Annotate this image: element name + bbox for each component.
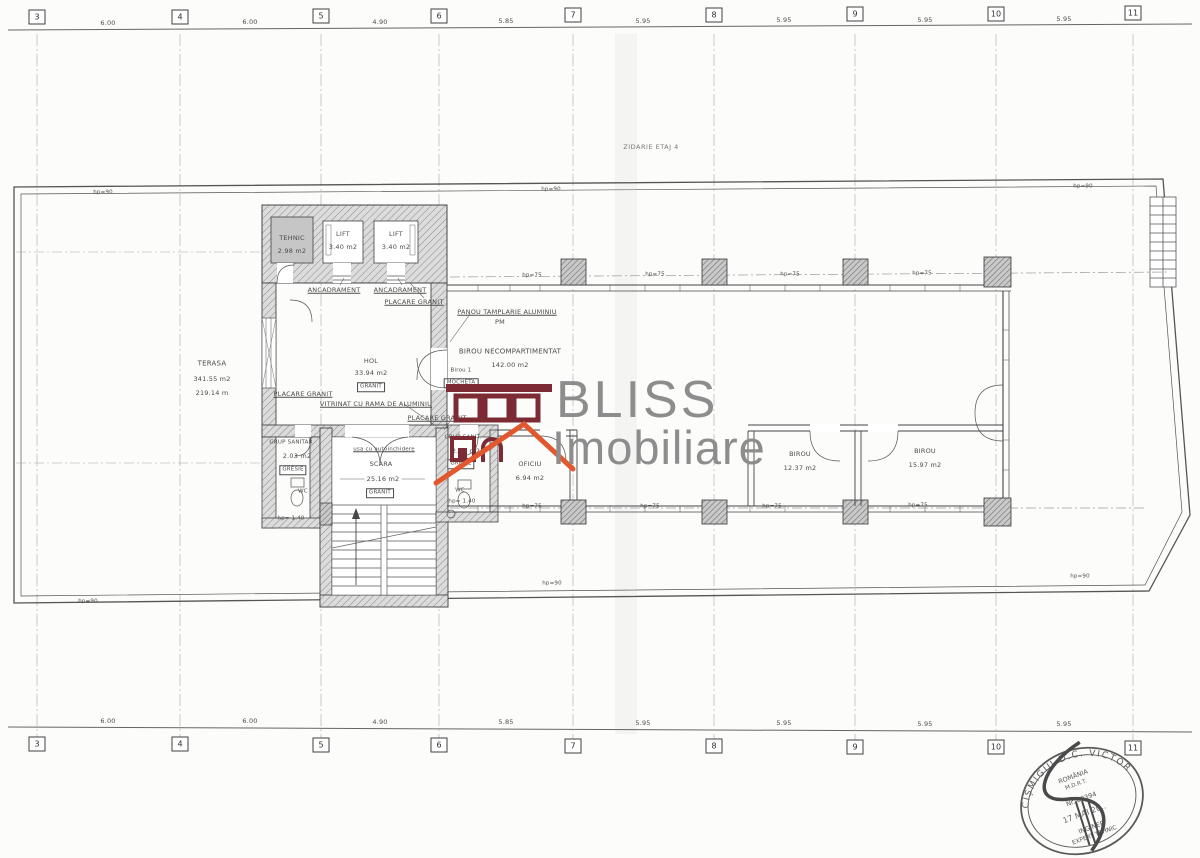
room-area-oficiu: 6.94 m2 (516, 475, 544, 482)
dim-top-2: 6.00 (242, 19, 257, 26)
grid-bubble-bot-9: 9 (847, 740, 864, 755)
grid-bubble-bot-5: 5 (313, 738, 330, 753)
hp75-label: hp=75 (522, 273, 542, 279)
hp75-label: hp=75 (522, 504, 542, 510)
door-note-scara: usa cu autoinchidere (353, 447, 415, 453)
callout-ancadrament-1: ANCADRAMENT (308, 287, 361, 294)
zidarie-note: ZIDARIE ETAJ 4 (623, 144, 678, 151)
top-ruler (8, 24, 1192, 30)
room-label-grup-sanitar-1: GRUP SANITAR (269, 440, 312, 446)
hp90-label: hp=90 (1073, 184, 1093, 190)
wc-hp-label-1: hp= 1.40 (277, 516, 304, 522)
dim-top-8: 5.95 (1056, 16, 1071, 23)
grid-bubble-top-5: 5 (313, 9, 330, 24)
room-area-hol: 33.94 m2 (355, 370, 388, 377)
dim-top-3: 4.90 (372, 19, 387, 26)
dim-bot-8: 5.95 (1056, 721, 1071, 728)
finish-tag-hol: GRANIT (357, 382, 385, 392)
grid-bubble-top-3: 3 (29, 10, 46, 25)
finish-tag-birou-1: MOCHETA (444, 378, 479, 388)
finish-tag-gs1: GRESIE (279, 465, 306, 475)
grid-bubble-bot-10: 10 (988, 740, 1005, 755)
hp75-label: hp=75 (640, 504, 660, 510)
room-area-birou-3: 15.97 m2 (909, 462, 942, 469)
dim-bot-2: 6.00 (242, 718, 257, 725)
room-label-lift-2: LIFT (389, 231, 403, 238)
room-label-lift-1: LIFT (336, 231, 350, 238)
floor-plan-page: 6.00 6.00 4.90 5.85 5.95 5.95 5.95 5.95 … (0, 0, 1200, 858)
room-area2-terasa: 219.14 m (196, 390, 229, 397)
hp90-label: hp=90 (78, 599, 98, 605)
room-area-grup-sanitar-2: 2.03 m2 (452, 448, 480, 455)
grid-bubble-bot-3: 3 (29, 737, 46, 752)
room-area-birou-2: 12.37 m2 (784, 465, 817, 472)
dim-top-5: 5.95 (635, 18, 650, 25)
room-area-lift-2: 3.40 m2 (382, 244, 410, 251)
grid-bubble-bot-11: 11 (1125, 741, 1142, 756)
room-label-birou-2: BIROU (789, 451, 811, 458)
hp75-label: hp=75 (780, 272, 800, 278)
hall-walls (262, 283, 447, 435)
room-area-open-office: 142.00 m2 (491, 362, 528, 369)
callout-placare-granit-left: PLACARE GRANIT (274, 391, 333, 398)
callout-ancadrament-2: ANCADRAMENT (374, 287, 427, 294)
hp90-label: hp=90 (1070, 574, 1090, 580)
grid-bubble-bot-6: 6 (431, 738, 448, 753)
finish-tag-scara: GRANIT (366, 488, 394, 498)
wc-label-2: WC (455, 488, 465, 494)
dim-top-4: 5.85 (498, 18, 513, 25)
grid-lines (37, 34, 1133, 740)
room-label-open-office: BIROU NECOMPARTIMENTAT (459, 349, 561, 356)
room-label-tehnic: TEHNIC (279, 235, 304, 242)
parapet-lines (16, 252, 1168, 508)
dim-bot-7: 5.95 (917, 721, 932, 728)
grid-bubble-top-7: 7 (565, 8, 582, 23)
dim-top-7: 5.95 (917, 17, 932, 24)
hp90-label: hp=90 (93, 190, 113, 196)
grid-bubble-top-11: 11 (1125, 6, 1142, 21)
dim-bot-4: 5.85 (498, 719, 513, 726)
hp75-label: hp=75 (912, 271, 932, 277)
dim-bot-6: 5.95 (776, 720, 791, 727)
room-label-oficiu: OFICIU (518, 461, 541, 468)
room-label-grup-sanitar-2: GRUP SANIT. (445, 435, 482, 441)
callout-panou-line1: PANOU TAMPLARIE ALUMINIU (457, 309, 556, 316)
terrace-outline (14, 179, 1190, 603)
bottom-ruler (8, 727, 1192, 732)
dim-top-1: 6.00 (100, 20, 115, 27)
scan-artifact (615, 34, 637, 734)
callout-vitrinat: VITRINAT CU RAMA DE ALUMINIU (320, 401, 432, 408)
room-label-birou-3: BIROU (914, 448, 936, 455)
floor-plan-drawing (0, 0, 1200, 858)
grid-bubble-bot-8: 8 (706, 739, 723, 754)
callout-placare-granit-2: PLACARE GRANIT (408, 415, 467, 422)
dim-bot-1: 6.00 (100, 718, 115, 725)
callout-panou-line2: PM (495, 319, 505, 326)
grid-bubble-bot-4: 4 (172, 737, 189, 752)
callout-placare-granit-lifts: PLACARE GRANIT (385, 299, 444, 306)
hp90-label: hp=90 (541, 187, 561, 193)
dim-bot-3: 4.90 (372, 719, 387, 726)
room-label-birou-1: Birou 1 (451, 368, 472, 374)
room-area-tehnic: 2.98 m2 (278, 248, 306, 255)
grid-bubble-top-10: 10 (988, 7, 1005, 22)
room-area-terasa: 341.55 m2 (193, 376, 230, 383)
dim-top-6: 5.95 (776, 17, 791, 24)
room-label-scara: SCARA (370, 461, 393, 468)
room-area-grup-sanitar-1: 2.03 m2 (283, 453, 311, 460)
hp90-label: hp=90 (542, 581, 562, 587)
room-label-hol: HOL (364, 358, 378, 365)
room-area-scara: 25.16 m2 (365, 476, 402, 483)
exterior-ladder (1150, 197, 1176, 287)
room-area-lift-1: 3.40 m2 (329, 244, 357, 251)
finish-tag-gs2: GRESIE (447, 459, 474, 469)
grid-bubble-top-6: 6 (431, 9, 448, 24)
wc-hp-label-2: hp= 1.40 (448, 499, 475, 505)
hp75-label: hp=75 (645, 272, 665, 278)
grid-bubble-top-9: 9 (847, 7, 864, 22)
hp75-label: hp=75 (908, 503, 928, 509)
dim-bot-5: 5.95 (635, 720, 650, 727)
grid-bubble-top-8: 8 (706, 8, 723, 23)
grid-bubble-top-4: 4 (172, 10, 189, 25)
hp75-label: hp=75 (762, 504, 782, 510)
grid-bubble-bot-7: 7 (565, 739, 582, 754)
room-label-terasa: TERASA (198, 361, 227, 368)
wc-label-1: WC (298, 489, 308, 495)
